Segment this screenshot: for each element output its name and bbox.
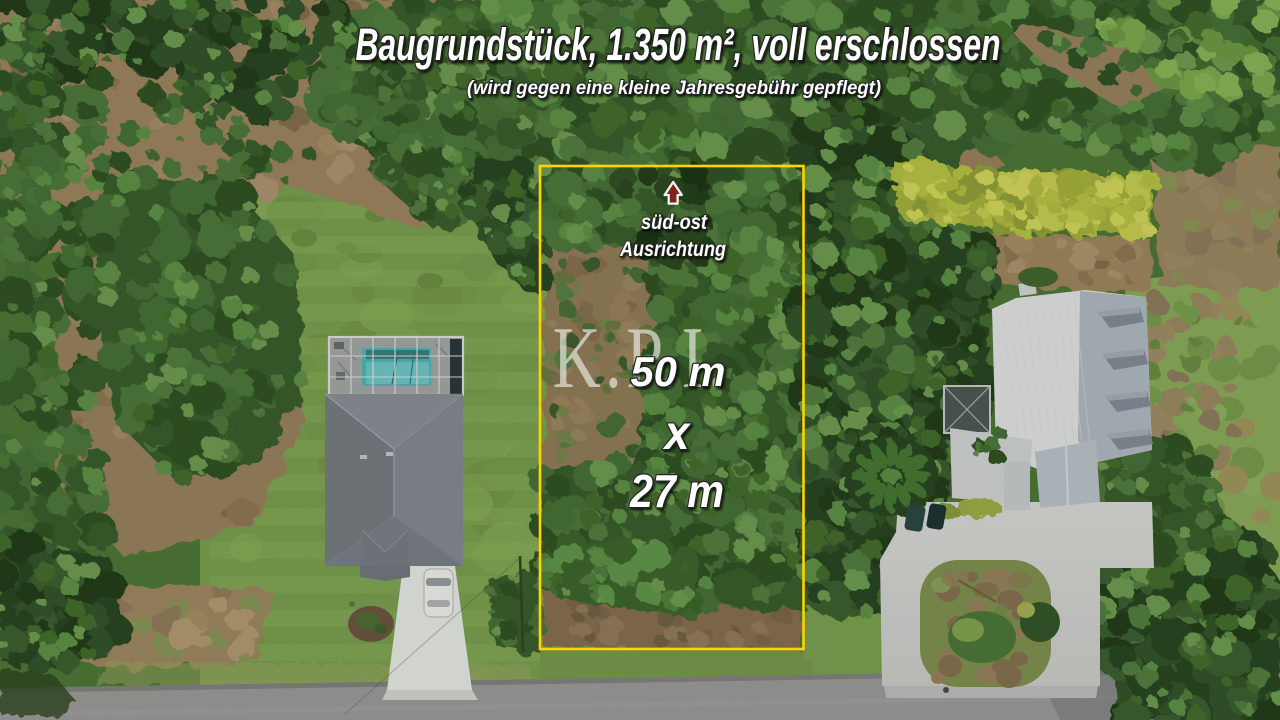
svg-text:Ausrichtung: Ausrichtung (619, 238, 726, 261)
svg-text:27 m: 27 m (629, 465, 724, 517)
svg-text:x: x (662, 407, 692, 460)
svg-text:(wird gegen eine kleine Jahres: (wird gegen eine kleine Jahresgebühr gep… (467, 78, 881, 99)
svg-text:süd-ost: süd-ost (641, 211, 708, 234)
svg-text:Baugrundstück, 1.350 m², voll: Baugrundstück, 1.350 m², voll erschlosse… (356, 19, 1001, 70)
svg-text:50 m: 50 m (631, 348, 726, 395)
